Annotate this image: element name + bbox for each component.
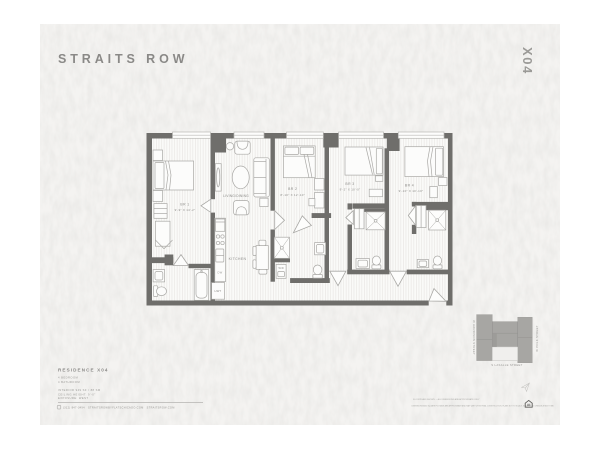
svg-text:W/D: W/D <box>278 267 283 270</box>
svg-text:W HARRISON STREET: W HARRISON STREET <box>472 320 476 355</box>
svg-text:9'-2" X 10'-0": 9'-2" X 10'-0" <box>340 188 361 192</box>
svg-text:BR 3: BR 3 <box>345 182 354 186</box>
svg-text:4 BATHROOM: 4 BATHROOM <box>58 380 80 384</box>
svg-text:LIVING/DINING: LIVING/DINING <box>223 194 249 198</box>
svg-text:4 BEDROOM: 4 BEDROOM <box>58 376 78 380</box>
svg-text:(312) 847-3494 STRAITSROWBYF: (312) 847-3494 STRAITSROWBYFLATSCHICAGO.… <box>63 406 175 410</box>
svg-text:X04: X04 <box>520 47 535 75</box>
svg-text:9'-10" X 10'-10": 9'-10" X 10'-10" <box>399 189 424 193</box>
svg-text:BR 2: BR 2 <box>288 187 297 191</box>
svg-text:BR 4: BR 4 <box>405 183 414 187</box>
svg-text:STRAITS ROW: STRAITS ROW <box>58 52 188 66</box>
svg-text:RESIDENCE X04: RESIDENCE X04 <box>58 367 109 372</box>
svg-text:W POLK STREET: W POLK STREET <box>535 325 539 352</box>
svg-text:KITCHEN: KITCHEN <box>229 257 247 261</box>
svg-text:INTERIOR 949 SF / 88 SM: INTERIOR 949 SF / 88 SM <box>58 388 101 392</box>
svg-text:BR 1: BR 1 <box>180 203 189 207</box>
svg-text:9'-9" X 14'-2": 9'-9" X 14'-2" <box>175 208 196 212</box>
svg-text:DIMENSIONS AND SQUARE FOOTAGE: DIMENSIONS AND SQUARE FOOTAGE ARE APPROX… <box>412 405 555 408</box>
svg-text:DW: DW <box>218 271 223 275</box>
svg-text:HWT: HWT <box>214 289 221 293</box>
svg-text:8'-10" X 12'-10": 8'-10" X 12'-10" <box>280 193 305 197</box>
svg-text:CEILING HEIGHT: 9'-0": CEILING HEIGHT: 9'-0" <box>58 392 96 396</box>
svg-text:S LASALLE STREET: S LASALLE STREET <box>491 363 522 367</box>
svg-text:FLOORPLANS SHOWN • ALL DIMEN: FLOORPLANS SHOWN • ALL DIMENSIONS ARE AP… <box>413 398 480 401</box>
svg-text:EXPOSURE: WEST: EXPOSURE: WEST <box>58 396 89 400</box>
